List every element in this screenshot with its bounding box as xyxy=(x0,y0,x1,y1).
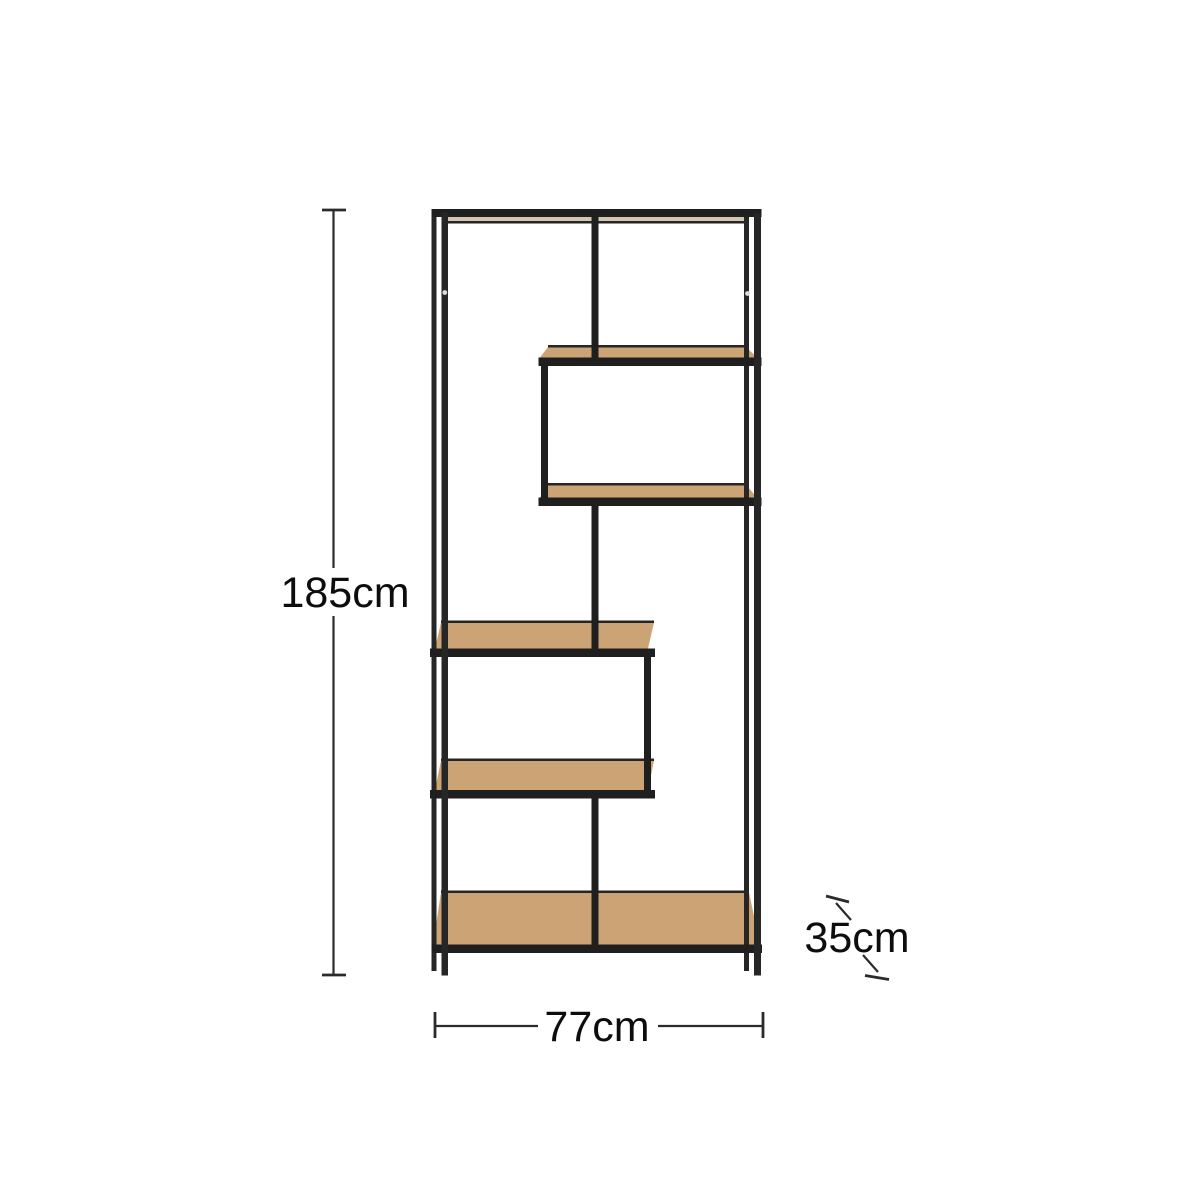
depth-dimension-label: 35cm xyxy=(804,914,909,962)
left-rear-post xyxy=(432,210,437,971)
shelving-unit-drawing: 185cm 77cm 35cm xyxy=(0,0,1200,1200)
lower-left-shelf-rear-edge xyxy=(441,759,654,762)
mid-left-shelf-wood xyxy=(435,623,654,649)
depth-dimension: 35cm xyxy=(804,896,909,980)
height-dimension-label: 185cm xyxy=(280,569,409,617)
left-box-right-wall xyxy=(644,657,651,799)
depth-dimension-bottom-tick xyxy=(865,976,889,980)
top-front-bar xyxy=(432,209,762,217)
center-divider-middle xyxy=(592,506,599,657)
upper-right-shelf-wood xyxy=(540,347,757,358)
rear-frame xyxy=(432,210,750,971)
lower-left-shelf-wood xyxy=(435,761,654,791)
right-rear-post xyxy=(744,210,749,971)
center-divider-bottom xyxy=(592,799,599,954)
lower-left-shelf-front-bar xyxy=(430,790,655,799)
mid-left-shelf-rear-edge xyxy=(441,621,654,624)
upper-right-shelf-rear-edge xyxy=(548,345,746,348)
front-frame xyxy=(430,209,762,976)
width-dimension: 77cm xyxy=(435,1003,763,1051)
center-divider-top xyxy=(592,217,599,366)
mid-left-shelf-front-bar xyxy=(430,649,655,658)
right-post-screw-hole xyxy=(745,291,750,296)
width-dimension-label: 77cm xyxy=(544,1003,649,1051)
right-box-left-wall xyxy=(541,358,548,507)
height-dimension: 185cm xyxy=(280,210,409,975)
mid-right-shelf-rear-edge xyxy=(548,483,746,486)
left-front-post xyxy=(442,213,449,976)
mid-right-shelf-front-bar xyxy=(539,498,762,507)
left-post-screw-hole xyxy=(442,290,447,295)
upper-right-shelf-front-bar xyxy=(539,358,762,367)
right-front-post xyxy=(754,214,761,976)
mid-right-shelf-wood xyxy=(540,485,757,498)
shelving-unit xyxy=(430,209,762,976)
product-dimension-diagram: 185cm 77cm 35cm xyxy=(0,0,1200,1200)
depth-dimension-top-tick xyxy=(826,896,849,902)
